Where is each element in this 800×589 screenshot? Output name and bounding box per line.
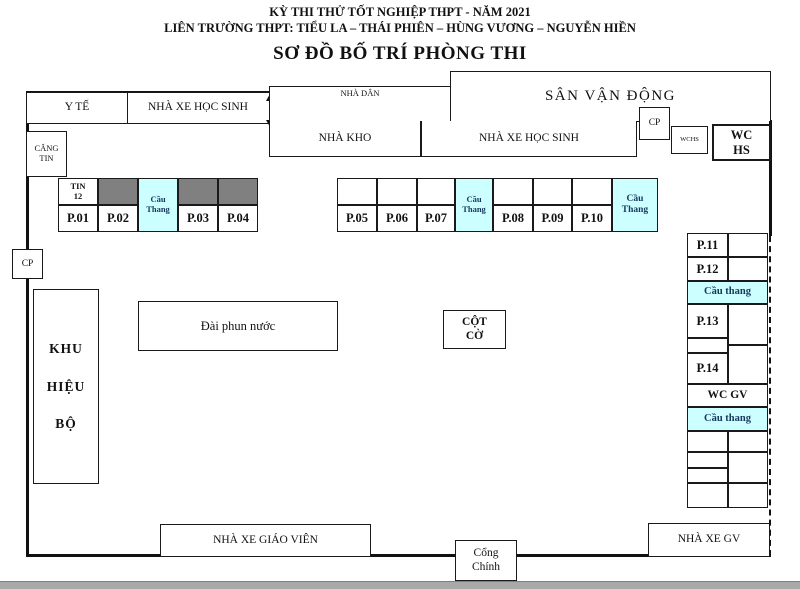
- exam-title-line2: LIÊN TRƯỜNG THPT: TIỂU LA – THÁI PHIÊN –…: [0, 21, 800, 36]
- stairs-middle-1-label: Cầu Thang: [457, 195, 491, 215]
- empty-cell: [728, 431, 768, 452]
- exam-room-p12: P.12: [687, 257, 728, 281]
- canteen: CĂNG TIN: [26, 131, 67, 177]
- empty-cell: [533, 178, 572, 205]
- exam-room-p11: P.11: [687, 233, 728, 257]
- stairs-right-2: Cầu thang: [687, 407, 768, 431]
- room-label: P.03: [187, 211, 209, 225]
- empty-cell: [728, 233, 768, 257]
- canteen-label-line2: TIN: [39, 154, 53, 164]
- exam-room-p03: P.03: [178, 205, 218, 232]
- exam-room-p06: P.06: [377, 205, 417, 232]
- admin-area-line3: BỘ: [55, 416, 77, 432]
- flag-pole-line2: CỜ: [466, 330, 483, 343]
- exam-room-p09: P.09: [533, 205, 572, 232]
- teacher-bike-shed-gv: NHÀ XE GV: [648, 523, 770, 557]
- medical-room-label: Y TẾ: [65, 101, 90, 114]
- empty-cell: [493, 178, 533, 205]
- room-label: P.09: [541, 211, 563, 225]
- room-label: P.05: [346, 211, 368, 225]
- empty-cell: [728, 483, 768, 508]
- stairs-left-block: Cầu Thang: [138, 178, 178, 232]
- student-bike-shed-top: NHÀ XE HỌC SINH: [127, 92, 270, 124]
- guard-post-top: CP: [639, 107, 670, 140]
- stadium-label: SÂN VẬN ĐỘNG: [545, 88, 676, 105]
- blocked-cell: [178, 178, 218, 205]
- empty-cell: [687, 483, 728, 508]
- empty-cell: [728, 345, 768, 384]
- stairs-right-1: Cầu thang: [687, 281, 768, 304]
- exam-room-p14: P.14: [687, 353, 728, 384]
- empty-cell: [728, 304, 768, 345]
- teacher-wc-label: WC GV: [708, 389, 748, 402]
- stadium: SÂN VẬN ĐỘNG: [450, 71, 771, 121]
- page-title: SƠ ĐỒ BỐ TRÍ PHÒNG THI: [0, 43, 800, 65]
- room-label: P.02: [107, 211, 129, 225]
- room-label: P.04: [227, 211, 249, 225]
- residential-house-label: NHÀ DÂN: [341, 89, 380, 99]
- exam-room-p05: P.05: [337, 205, 377, 232]
- flag-pole-line1: CỘT: [462, 316, 487, 329]
- admin-area: KHU HIỆU BỘ: [33, 289, 99, 484]
- stairs-right-1-label: Cầu thang: [704, 286, 751, 298]
- admin-area-line2: HIỆU: [47, 379, 86, 395]
- empty-cell: [417, 178, 455, 205]
- stairs-right-2-label: Cầu thang: [704, 413, 751, 425]
- blocked-cell: [98, 178, 138, 205]
- warehouse: NHÀ KHO: [269, 121, 421, 157]
- empty-cell: [728, 257, 768, 281]
- blocked-cell: [218, 178, 258, 205]
- tin12-line2: 12: [74, 192, 83, 202]
- empty-cell: [337, 178, 377, 205]
- room-label: P.11: [697, 238, 718, 252]
- room-label: P.07: [425, 211, 447, 225]
- empty-cell: [687, 431, 728, 452]
- teacher-bike-shed-gv-label: NHÀ XE GV: [678, 533, 741, 546]
- room-label: P.10: [581, 211, 603, 225]
- teacher-wc: WC GV: [687, 384, 768, 407]
- main-gate: Cổng Chính: [455, 540, 517, 581]
- student-bike-shed-inner-label: NHÀ XE HỌC SINH: [479, 132, 579, 145]
- warehouse-label: NHÀ KHO: [319, 132, 372, 145]
- empty-cell: [728, 452, 768, 483]
- bottom-scroll-bar[interactable]: [0, 581, 800, 589]
- guard-post-top-label: CP: [649, 118, 661, 129]
- computer-lab-tin12: TIN 12: [58, 178, 98, 205]
- exam-title-line1: KỲ THI THỬ TỐT NGHIỆP THPT - NĂM 2021: [0, 5, 800, 20]
- empty-cell: [572, 178, 612, 205]
- student-wc: WC HS: [712, 124, 771, 161]
- empty-cell: [377, 178, 417, 205]
- room-label: P.08: [502, 211, 524, 225]
- room-label: P.06: [386, 211, 408, 225]
- room-label: P.14: [696, 361, 718, 375]
- guard-post-left: CP: [12, 249, 43, 279]
- empty-cell: [687, 338, 728, 353]
- room-label: P.01: [67, 211, 89, 225]
- exam-room-p08: P.08: [493, 205, 533, 232]
- flag-pole: CỘT CỜ: [443, 310, 506, 349]
- teacher-bike-shed: NHÀ XE GIÁO VIÊN: [160, 524, 371, 557]
- student-bike-shed-top-label: NHÀ XE HỌC SINH: [148, 101, 248, 114]
- student-wc-small: WCHS: [671, 126, 708, 154]
- admin-area-line1: KHU: [49, 341, 83, 357]
- exam-room-p01: P.01: [58, 205, 98, 232]
- fountain: Đài phun nước: [138, 301, 338, 351]
- floor-plan-page: KỲ THI THỬ TỐT NGHIỆP THPT - NĂM 2021 LI…: [0, 0, 800, 589]
- room-label: P.13: [696, 314, 718, 328]
- fountain-label: Đài phun nước: [201, 319, 275, 333]
- exam-room-p13: P.13: [687, 304, 728, 338]
- stairs-middle-1: Cầu Thang: [455, 178, 493, 232]
- empty-cell: [687, 452, 728, 468]
- empty-cell: [687, 468, 728, 483]
- exam-room-p02: P.02: [98, 205, 138, 232]
- stairs-left-label: Cầu Thang: [140, 195, 176, 215]
- exam-room-p04: P.04: [218, 205, 258, 232]
- medical-room: Y TẾ: [26, 92, 128, 124]
- main-gate-line1: Cổng: [474, 547, 499, 560]
- stairs-middle-2: Cầu Thang: [612, 178, 658, 232]
- student-wc-label-line1: WC: [731, 128, 753, 142]
- student-wc-small-label: WCHS: [680, 136, 699, 143]
- student-bike-shed-inner: NHÀ XE HỌC SINH: [421, 121, 637, 157]
- residential-house: NHÀ DÂN: [269, 86, 451, 121]
- boundary-right-dashed: [769, 236, 771, 556]
- teacher-bike-shed-label: NHÀ XE GIÁO VIÊN: [213, 534, 318, 547]
- exam-room-p07: P.07: [417, 205, 455, 232]
- guard-post-left-label: CP: [22, 259, 34, 270]
- main-gate-line2: Chính: [472, 561, 500, 574]
- exam-room-p10: P.10: [572, 205, 612, 232]
- room-label: P.12: [696, 262, 718, 276]
- stairs-middle-2-label: Cầu Thang: [614, 194, 656, 216]
- student-wc-label-line2: HS: [733, 143, 750, 157]
